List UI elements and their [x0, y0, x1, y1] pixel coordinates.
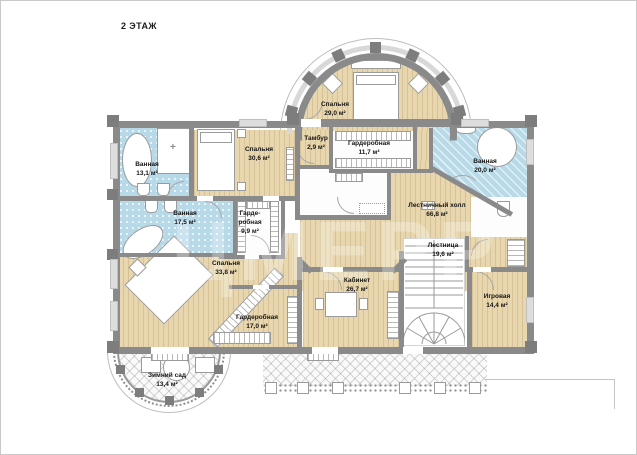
- wall: [295, 215, 391, 220]
- window: [110, 259, 118, 289]
- wall: [295, 165, 333, 169]
- room-area: 2,9 м²: [304, 144, 328, 153]
- door-opening: [151, 347, 189, 354]
- window: [110, 143, 118, 179]
- room-area: 17,0 м²: [236, 323, 278, 332]
- label-bathroom-20: Ванная 20,0 м²: [473, 158, 497, 176]
- floor-plan-page: 2 ЭТАЖ: [0, 0, 637, 455]
- room-area: 26,7 м²: [344, 286, 370, 295]
- desk: [325, 292, 357, 317]
- built-in-cabinet: [507, 239, 525, 267]
- wall: [467, 272, 472, 347]
- column: [165, 396, 174, 405]
- label-wardrobe-9: Гарде-робная 9,9 м²: [231, 210, 269, 236]
- column: [135, 388, 144, 397]
- window: [461, 119, 489, 127]
- toilet: [145, 200, 158, 213]
- door-opening: [473, 267, 491, 272]
- window: [239, 119, 267, 127]
- closet-shelves: [335, 173, 363, 182]
- label-bedroom-30: Спальня 30,6 м²: [245, 146, 273, 164]
- bed-pillow: [200, 132, 232, 143]
- column: [116, 365, 125, 374]
- room-name: Тамбур: [304, 135, 328, 144]
- site-line: [614, 379, 615, 409]
- door-opening: [263, 196, 279, 201]
- room-area: 20,0 м²: [473, 167, 497, 176]
- label-staircase: Лестница 19,6 м²: [428, 242, 459, 260]
- room-area: 30,6 м²: [245, 155, 273, 164]
- room-name: Зимний сад: [148, 372, 186, 381]
- room-area: 11,7 м²: [348, 149, 390, 158]
- label-bathroom-13: Ванная 13,1 м²: [135, 161, 159, 179]
- pilaster: [107, 341, 119, 353]
- label-wardrobe-11: Гардеробная 11,7 м²: [348, 140, 390, 158]
- room-name: Ванная: [473, 158, 497, 167]
- wall: [329, 169, 433, 173]
- window: [110, 301, 118, 331]
- room-area: 66,8 м²: [405, 211, 469, 220]
- room-name: Игровая: [484, 293, 511, 302]
- column: [214, 365, 223, 374]
- room-area: 9,9 м²: [231, 227, 269, 236]
- door-opening: [323, 267, 343, 272]
- pilaster: [525, 115, 537, 127]
- room-area: 33,8 м²: [212, 269, 240, 278]
- label-study: Кабинет 26,7 м²: [344, 277, 370, 295]
- planter: [195, 357, 215, 373]
- door-opening: [253, 285, 269, 289]
- window: [526, 297, 534, 323]
- room-name: Лестничный холл: [405, 202, 469, 211]
- wardrobe-shelves: [246, 201, 270, 209]
- pilaster: [525, 341, 537, 353]
- door-opening: [197, 196, 213, 201]
- nightstand: [237, 182, 246, 191]
- label-bedroom-29: Спальня 29,0 м²: [321, 101, 349, 119]
- column: [195, 388, 204, 397]
- door-opening: [312, 347, 338, 354]
- terrace-column: [332, 382, 344, 394]
- label-bathroom-17: Ванная 17,5 м²: [173, 210, 197, 228]
- pilaster: [287, 113, 299, 125]
- toilet: [137, 183, 150, 196]
- page-title: 2 ЭТАЖ: [121, 21, 157, 31]
- wall: [113, 121, 300, 128]
- wall: [387, 169, 391, 219]
- hall-bench: [359, 203, 385, 214]
- room-area: 19,6 м²: [428, 251, 459, 260]
- terrace-column: [297, 382, 309, 394]
- room-name: Спальня: [212, 260, 240, 269]
- wardrobe-shelves: [335, 158, 411, 168]
- room-area: 13,1 м²: [135, 170, 159, 179]
- wall: [281, 197, 285, 259]
- room-area: 29,0 м²: [321, 110, 349, 119]
- wardrobe-shelves: [270, 201, 279, 253]
- chair: [315, 298, 324, 310]
- wall: [189, 127, 194, 199]
- steps: [151, 353, 189, 361]
- terrace-column: [469, 382, 481, 394]
- pilaster: [107, 115, 119, 127]
- nightstand: [237, 129, 246, 138]
- room-name: Ванная: [173, 210, 197, 219]
- room-area: 13,4 м²: [148, 381, 186, 390]
- label-bedroom-33: Спальня 33,8 м²: [212, 260, 240, 278]
- chair: [359, 298, 368, 310]
- door-opening: [245, 255, 259, 259]
- label-vestibule: Тамбур 2,9 м²: [304, 135, 328, 153]
- room-name: Гарде-робная: [231, 210, 269, 228]
- site-line: [485, 379, 615, 380]
- bathtub: [122, 133, 152, 187]
- bookcase: [387, 291, 399, 339]
- label-stair-hall: Лестничный холл 66,8 м²: [405, 202, 469, 220]
- room-name: Гардеробная: [348, 140, 390, 149]
- label-winter-garden: Зимний сад 13,4 м²: [148, 372, 186, 390]
- window: [526, 139, 534, 165]
- wall: [413, 127, 417, 173]
- steps: [307, 353, 339, 361]
- room-area: 14,4 м²: [484, 302, 511, 311]
- terrace-column: [399, 382, 411, 394]
- wardrobe-shelves: [213, 332, 271, 344]
- dresser: [286, 147, 294, 181]
- room-name: Спальня: [245, 146, 273, 155]
- room-area: 17,5 м²: [173, 219, 197, 228]
- terrace-column: [434, 382, 446, 394]
- label-playroom: Игровая 14,4 м²: [484, 293, 511, 311]
- column: [370, 42, 381, 53]
- door-opening: [403, 347, 423, 354]
- pilaster: [107, 189, 118, 200]
- room-name: Спальня: [321, 101, 349, 110]
- wall: [295, 121, 300, 219]
- room-name: Гардеробная: [236, 314, 278, 323]
- label-wardrobe-17: Гардеробная 17,0 м²: [236, 314, 278, 332]
- room-name: Ванная: [135, 161, 159, 170]
- wall: [299, 267, 403, 272]
- room-name: Лестница: [428, 242, 459, 251]
- terrace-column: [265, 382, 277, 394]
- door-opening: [301, 119, 321, 127]
- room-name: Кабинет: [344, 277, 370, 286]
- shower-head-icon: +: [170, 142, 176, 153]
